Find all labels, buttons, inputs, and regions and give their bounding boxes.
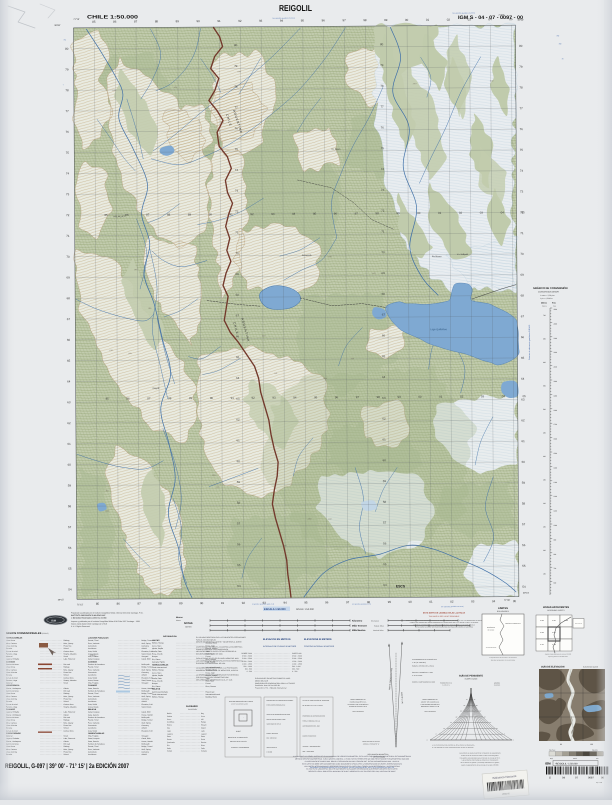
svg-text:A. & I. Rights Reserved.: A. & I. Rights Reserved. <box>71 625 91 628</box>
svg-text:74: 74 <box>520 169 524 173</box>
svg-text:Sendero de herradura: Sendero de herradura <box>88 663 105 666</box>
svg-text:00: 00 <box>417 211 421 215</box>
svg-text:ESTA CARTA DIRIGIRLAS A:: ESTA CARTA DIRIGIRLAS A: <box>267 705 286 707</box>
svg-text:Swamp, Meadow: Swamp, Meadow <box>64 652 78 655</box>
svg-text:59: 59 <box>68 483 72 487</box>
svg-text:02: 02 <box>447 18 451 22</box>
svg-text:IGM: IGM <box>545 762 551 766</box>
svg-text:1:50.000: 1:50.000 <box>267 752 273 754</box>
svg-text:Bosque: Bosque <box>152 682 158 685</box>
svg-text:57: 57 <box>522 522 526 526</box>
svg-text:67: 67 <box>67 317 71 321</box>
svg-text:Building, Ruins: Building, Ruins <box>206 696 217 699</box>
svg-text:500 - 1.000: 500 - 1.000 <box>292 665 301 668</box>
svg-text:Cerco, Muro: Cerco, Muro <box>152 671 161 674</box>
svg-text:03: 03 <box>471 599 475 603</box>
svg-text:67: 67 <box>382 313 386 317</box>
svg-text:56: 56 <box>383 541 387 545</box>
svg-text:SANTIAGO DE CHILE: SANTIAGO DE CHILE <box>267 724 281 726</box>
svg-text:88: 88 <box>155 19 159 23</box>
svg-text:Lake, Reservoir: Lake, Reservoir <box>64 711 76 714</box>
svg-text:FERROCARRILES: FERROCARRILES <box>152 663 169 666</box>
svg-text:Viña, Frutales: Viña, Frutales <box>88 682 99 685</box>
svg-text:87: 87 <box>138 601 142 605</box>
svg-text:56: 56 <box>522 543 526 547</box>
svg-text:CAMINOS: CAMINOS <box>88 684 98 687</box>
svg-text:Cota, Señal: Cota, Señal <box>88 676 97 679</box>
svg-text:80: 80 <box>234 43 238 47</box>
svg-text:Aquellas hojas adyacentes de l: Aquellas hojas adyacentes de la serie 1:… <box>545 654 572 656</box>
svg-text:68: 68 <box>382 292 386 296</box>
svg-text:Volcán: Volcán <box>167 750 172 753</box>
svg-text:61: 61 <box>382 437 386 441</box>
svg-text:Airfield: Airfield <box>142 700 147 703</box>
svg-text:SCALE 1:50.000: SCALE 1:50.000 <box>296 608 314 611</box>
svg-text:Milla Nautica: Milla Nautica <box>352 629 366 632</box>
svg-text:PENDIENTE EN %: PENDIENTE EN % <box>440 683 453 685</box>
svg-text:Swamp, Meadow: Swamp, Meadow <box>64 679 78 682</box>
svg-text:88: 88 <box>167 213 171 217</box>
svg-text:Mine, Quarry: Mine, Quarry <box>64 748 74 751</box>
svg-text:57: 57 <box>237 522 241 526</box>
svg-text:71: 71 <box>66 234 70 238</box>
svg-text:58: 58 <box>68 504 72 508</box>
svg-text:2.000 - 2.500: 2.000 - 2.500 <box>292 657 302 660</box>
svg-text:Cota, Señal: Cota, Señal <box>88 729 97 732</box>
svg-text:63: 63 <box>521 398 525 402</box>
svg-text:DISTRIBUCION: DISTRIBUCION <box>163 635 177 638</box>
svg-text:Sand, Dunes: Sand, Dunes <box>142 679 152 682</box>
svg-text:BOUNDARIES: BOUNDARIES <box>497 610 510 613</box>
svg-text:Quebrada: Quebrada <box>167 741 175 744</box>
svg-text:68: 68 <box>521 294 525 298</box>
svg-text:Mine, Quarry: Mine, Quarry <box>64 695 74 698</box>
svg-text:Cementerio: Cementerio <box>88 724 97 727</box>
svg-text:Point: Point <box>201 738 205 741</box>
svg-text:GUÍA DE PENDIENTE: GUÍA DE PENDIENTE <box>459 674 484 678</box>
svg-text:78: 78 <box>65 88 69 92</box>
svg-text:Viña, Frutales: Viña, Frutales <box>88 655 99 658</box>
svg-text:Impreso y publicado por el Ins: Impreso y publicado por el Instituto Geo… <box>71 620 140 623</box>
svg-text:79: 79 <box>234 64 238 68</box>
svg-text:Railway: Railway <box>64 745 70 748</box>
svg-text:98: 98 <box>377 395 381 399</box>
svg-text:78: 78 <box>234 85 238 89</box>
svg-text:69: 69 <box>381 271 385 275</box>
svg-text:Mine, Quarry: Mine, Quarry <box>64 721 74 724</box>
svg-text:95: 95 <box>301 18 305 22</box>
svg-text:Cove: Cove <box>201 715 205 718</box>
svg-text:59: 59 <box>237 480 241 484</box>
svg-text:04: 04 <box>492 599 496 603</box>
svg-text:Viña, Frutales: Viña, Frutales <box>88 735 99 738</box>
svg-text:02: 02 <box>450 600 454 604</box>
svg-text:Canal, Acequia: Canal, Acequia <box>88 737 99 740</box>
svg-text:Arena, Dunas: Arena, Dunas <box>88 705 98 708</box>
svg-text:78: 78 <box>519 86 523 90</box>
svg-text:57: 57 <box>383 521 387 525</box>
svg-text:Milla Terrestre: Milla Terrestre <box>352 625 368 628</box>
svg-text:56: 56 <box>237 542 241 546</box>
svg-text:93: 93 <box>259 19 263 23</box>
svg-text:71: 71 <box>520 231 524 235</box>
svg-text:Límite internacional: Límite internacional <box>152 693 167 696</box>
svg-text:1500: 1500 <box>134 268 138 271</box>
svg-text:ADJOINING SHEETS: ADJOINING SHEETS <box>547 609 565 612</box>
svg-text:89: 89 <box>189 396 193 400</box>
svg-text:Dirt road: Dirt road <box>64 663 71 666</box>
svg-text:Rinconada: Rinconada <box>302 254 312 257</box>
svg-text:03: 03 <box>468 17 472 21</box>
svg-text:97: 97 <box>342 18 346 22</box>
svg-text:76: 76 <box>66 130 70 134</box>
svg-text:63: 63 <box>382 396 386 400</box>
svg-text:Aeródromo: Aeródromo <box>88 700 96 703</box>
svg-text:66: 66 <box>67 338 71 342</box>
svg-text:Cemetery: Cemetery <box>142 671 149 674</box>
svg-text:72: 72 <box>235 210 239 214</box>
svg-text:1669: 1669 <box>112 89 116 92</box>
svg-text:Power line: Power line <box>64 697 72 700</box>
svg-text:Sand, Dunes: Sand, Dunes <box>142 652 152 655</box>
svg-text:NOTAS: NOTAS <box>184 622 193 625</box>
svg-text:a. LA DISTANCIA ENTRE CURVAS: a. LA DISTANCIA ENTRE CURVAS DE NIVEL IN… <box>432 745 475 747</box>
svg-text:Canal, Ditch: Canal, Ditch <box>142 737 151 740</box>
svg-text:Sendero de herradura: Sendero de herradura <box>88 690 105 693</box>
svg-text:Scrub: Scrub <box>64 682 68 685</box>
svg-text:Sand, Dunes: Sand, Dunes <box>142 705 152 708</box>
svg-text:Metros: Metros <box>541 302 547 305</box>
svg-text:DEGREES: DEGREES <box>494 685 500 687</box>
svg-text:Casa, Caserío: Casa, Caserío <box>88 687 99 690</box>
svg-text:IGM - SANTIAGO: IGM - SANTIAGO <box>303 751 315 753</box>
svg-text:Kilometro: Kilometro <box>352 620 363 623</box>
svg-text:68: 68 <box>236 293 240 297</box>
svg-text:00: 00 <box>418 395 422 399</box>
svg-text:1.500 - 2.000: 1.500 - 2.000 <box>292 660 302 663</box>
svg-text:99: 99 <box>397 395 401 399</box>
svg-text:Well, Spring: Well, Spring <box>142 642 151 645</box>
svg-text:65: 65 <box>67 359 71 363</box>
svg-text:Power line: Power line <box>64 671 72 674</box>
svg-text:TOTAL O PARCIAL SIN LA: TOTAL O PARCIAL SIN LA <box>303 720 320 722</box>
svg-text:ESTE MAPA ES LEGIBLE BAJO LUZ: ESTE MAPA ES LEGIBLE BAJO LUZ ROJA <box>423 612 466 615</box>
svg-text:67: 67 <box>521 314 525 318</box>
svg-text:Power line: Power line <box>64 750 72 753</box>
svg-text:04: 04 <box>488 17 492 21</box>
svg-text:56: 56 <box>68 546 72 550</box>
svg-text:Pass: Pass <box>201 735 205 738</box>
svg-text:River, Stream: River, Stream <box>206 685 217 688</box>
svg-text:94: 94 <box>292 212 296 216</box>
svg-text:98: 98 <box>367 600 371 604</box>
svg-text:1393: 1393 <box>105 510 109 513</box>
svg-text:01: 01 <box>439 395 443 399</box>
svg-text:Bridle path: Bridle path <box>142 716 150 719</box>
svg-text:Cascada, Rápido: Cascada, Rápido <box>152 661 165 664</box>
svg-text:© Derechos Reservados JJ010-0: © Derechos Reservados JJ010-0 a 01-068 <box>71 617 106 620</box>
svg-text:62: 62 <box>67 421 71 425</box>
svg-text:73: 73 <box>520 190 524 194</box>
svg-text:Lake, Reservoir: Lake, Reservoir <box>64 658 76 661</box>
svg-text:Mine, Quarry: Mine, Quarry <box>64 668 74 671</box>
svg-text:Railway: Railway <box>64 719 70 722</box>
svg-text:Dirt road: Dirt road <box>64 690 71 693</box>
svg-text:Range: Range <box>201 721 206 724</box>
svg-text:RELIEVE: RELIEVE <box>88 708 97 711</box>
svg-text:Kilometers: Kilometers <box>371 620 379 623</box>
svg-text:Elevation, B.M.: Elevation, B.M. <box>142 729 154 732</box>
svg-text:74: 74 <box>66 171 70 175</box>
svg-text:66: 66 <box>521 335 525 339</box>
svg-text:Well, Spring: Well, Spring <box>142 695 151 698</box>
svg-text:39°15': 39°15' <box>58 598 65 601</box>
svg-text:INSTITUTO GEOGRÁFICO MILITAR 2: INSTITUTO GEOGRÁFICO MILITAR 2007 <box>71 614 105 617</box>
svg-text:Río, Estero: Río, Estero <box>152 685 161 688</box>
svg-text:Aeródromo: Aeródromo <box>88 753 96 756</box>
svg-text:Vn. Sollipulli: Vn. Sollipulli <box>457 253 468 256</box>
svg-text:99: 99 <box>384 18 388 22</box>
svg-text:SHEET LOCATION GUIDE: SHEET LOCATION GUIDE <box>231 703 248 705</box>
svg-text:FERROCARRILES: FERROCARRILES <box>88 732 105 735</box>
svg-text:INTERVALO DE CURVAS 50 METROS: INTERVALO DE CURVAS 50 METROS <box>263 645 297 648</box>
svg-text:88: 88 <box>168 396 172 400</box>
svg-text:60: 60 <box>383 458 387 462</box>
svg-text:61: 61 <box>67 442 71 446</box>
svg-text:1170: 1170 <box>216 486 220 489</box>
svg-text:2231: 2231 <box>212 474 216 477</box>
svg-text:Cordillera: Cordillera <box>167 721 174 724</box>
svg-text:GRÁFICO DE CONVERSIÓN: GRÁFICO DE CONVERSIÓN <box>533 286 568 290</box>
svg-text:85: 85 <box>106 397 110 401</box>
svg-text:Scrub: Scrub <box>64 655 68 658</box>
svg-text:FONO: 460 68 00: FONO: 460 68 00 <box>267 733 279 735</box>
svg-text:73: 73 <box>235 189 239 193</box>
svg-text:Canal, Ditch: Canal, Ditch <box>142 658 151 661</box>
svg-text:Lake: Lake <box>201 729 205 732</box>
svg-text:Cementerio: Cementerio <box>88 671 97 674</box>
svg-text:0 - 200: 0 - 200 <box>292 670 297 673</box>
svg-text:62: 62 <box>521 418 525 422</box>
svg-text:Vineyard: Vineyard <box>142 735 149 738</box>
svg-text:55: 55 <box>383 562 387 566</box>
svg-text:LUGARES POBLADOS: LUGARES POBLADOS <box>88 637 109 640</box>
svg-text:Roca, Arrecife: Roca, Arrecife <box>152 680 163 683</box>
svg-text:00: 00 <box>409 600 413 604</box>
svg-text:91: 91 <box>217 19 221 23</box>
svg-text:1942: 1942 <box>490 79 494 82</box>
svg-text:73: 73 <box>66 192 70 196</box>
svg-text:Dirt road: Dirt road <box>64 716 71 719</box>
svg-text:71: 71 <box>235 230 239 234</box>
svg-text:School: School <box>64 753 70 756</box>
svg-text:Huella, Pista: Huella, Pista <box>152 650 162 653</box>
svg-text:71°15': 71°15' <box>77 603 84 606</box>
svg-text:Río: Río <box>167 744 170 747</box>
svg-text:67: 67 <box>236 314 240 318</box>
svg-text:65: 65 <box>382 354 386 358</box>
svg-text:74: 74 <box>381 167 385 171</box>
svg-text:Mine, Quarry: Mine, Quarry <box>64 642 74 645</box>
svg-text:Puente, Túnel: Puente, Túnel <box>88 692 99 695</box>
svg-text:School: School <box>64 727 70 730</box>
svg-text:G-086: G-086 <box>540 620 544 622</box>
svg-text:87: 87 <box>147 396 151 400</box>
svg-text:1184: 1184 <box>128 352 132 355</box>
svg-text:880: 880 <box>148 307 151 310</box>
svg-text:59: 59 <box>522 481 526 485</box>
svg-text:Bridle path: Bridle path <box>142 743 150 746</box>
svg-text:926: 926 <box>351 357 354 360</box>
svg-text:ESCS: ESCS <box>396 584 406 588</box>
svg-text:Rio Blanco: Rio Blanco <box>432 255 443 258</box>
svg-text:2.500 - 3.000: 2.500 - 3.000 <box>242 655 252 658</box>
svg-text:Casa, Caserío: Casa, Caserío <box>88 740 99 743</box>
svg-text:IGM: IGM <box>51 619 56 622</box>
svg-text:93: 93 <box>272 396 276 400</box>
svg-text:55: 55 <box>237 563 241 567</box>
svg-text:71°00': 71°00' <box>498 14 505 17</box>
svg-text:Pozo, Vertiente: Pozo, Vertiente <box>88 668 100 671</box>
svg-text:1656: 1656 <box>174 86 178 89</box>
svg-text:Bosque: Bosque <box>152 655 158 658</box>
svg-text:Swamp, Meadow: Swamp, Meadow <box>64 705 78 708</box>
svg-text:62: 62 <box>236 418 240 422</box>
svg-text:Canal, Ditch: Canal, Ditch <box>142 711 151 714</box>
svg-text:05: 05 <box>509 17 513 21</box>
svg-text:Lago Quillelhue: Lago Quillelhue <box>430 328 447 331</box>
svg-text:96: 96 <box>560 743 562 746</box>
svg-text:70: 70 <box>520 252 524 256</box>
svg-text:Pozo, Vertiente: Pozo, Vertiente <box>88 695 100 698</box>
svg-text:90: 90 <box>209 212 213 216</box>
svg-text:Edificio, Ruinas: Edificio, Ruinas <box>152 696 164 699</box>
svg-text:39°00': 39°00' <box>54 24 61 27</box>
svg-text:Airfield: Airfield <box>142 674 147 677</box>
svg-text:Volcano: Volcano <box>201 750 207 753</box>
svg-text:96: 96 <box>325 600 329 604</box>
svg-text:02: 02 <box>459 211 463 215</box>
svg-text:58: 58 <box>522 502 526 506</box>
svg-text:Puente, Túnel: Puente, Túnel <box>88 719 99 722</box>
svg-text:95: 95 <box>304 600 308 604</box>
svg-text:71: 71 <box>381 229 385 233</box>
svg-text:93: 93 <box>271 212 275 216</box>
svg-text:992: 992 <box>106 489 109 492</box>
svg-text:Aeródromo: Aeródromo <box>88 647 96 650</box>
svg-text:School: School <box>64 700 70 703</box>
svg-text:99: 99 <box>396 211 400 215</box>
svg-text:95: 95 <box>313 212 317 216</box>
svg-text:95: 95 <box>314 395 318 399</box>
svg-text:87: 87 <box>146 213 150 217</box>
svg-text:G-104: G-104 <box>540 644 544 646</box>
svg-text:G-097: G-097 <box>552 620 556 622</box>
svg-text:02: 02 <box>460 394 464 398</box>
svg-text:39°15': 39°15' <box>523 592 530 595</box>
svg-text:CONTOUR INTERVAL 50 METERS: CONTOUR INTERVAL 50 METERS <box>304 645 335 648</box>
svg-text:Contour lines: Contour lines <box>64 650 74 653</box>
svg-text:Caleta: Caleta <box>167 715 172 718</box>
svg-text:1816: 1816 <box>323 377 327 380</box>
svg-text:76: 76 <box>520 127 524 131</box>
svg-text:DE CHILE: DE CHILE <box>488 630 494 632</box>
svg-text:57: 57 <box>68 525 72 529</box>
svg-text:Bridle path: Bridle path <box>142 663 150 666</box>
svg-text:Adjoining sheets of 1:50.000 s: Adjoining sheets of 1:50.000 series <box>548 656 568 658</box>
svg-text:Stream: Stream <box>201 724 207 727</box>
svg-text:63: 63 <box>236 397 240 401</box>
svg-text:Bridle path: Bridle path <box>142 690 150 693</box>
svg-text:72: 72 <box>520 210 524 214</box>
svg-text:1443: 1443 <box>372 272 376 275</box>
svg-text:Glacier: Glacier <box>64 687 70 690</box>
svg-text:LIMITES: LIMITES <box>498 607 508 610</box>
svg-text:Well, Spring: Well, Spring <box>142 668 151 671</box>
svg-text:Cemetery: Cemetery <box>142 644 149 647</box>
svg-text:Estero: Estero <box>167 724 172 727</box>
svg-text:90: 90 <box>197 19 201 23</box>
svg-text:REIGOLIL: REIGOLIL <box>279 3 312 13</box>
svg-text:61: 61 <box>521 439 525 443</box>
svg-text:GLOSSARY: GLOSSARY <box>188 708 198 711</box>
svg-text:91: 91 <box>231 396 235 400</box>
svg-text:64: 64 <box>521 377 525 381</box>
svg-text:86: 86 <box>113 20 117 24</box>
svg-text:Contour lines: Contour lines <box>64 676 74 679</box>
svg-text:-REIGOLIL- 1:50.000: -REIGOLIL- 1:50.000 <box>555 763 578 766</box>
svg-text:Sendero de herradura: Sendero de herradura <box>88 716 105 719</box>
svg-text:89: 89 <box>176 19 180 23</box>
svg-text:69: 69 <box>520 273 524 277</box>
svg-text:1257: 1257 <box>109 349 113 352</box>
svg-text:1.000 - 1.500: 1.000 - 1.500 <box>242 662 252 665</box>
svg-text:Aeródromo: Aeródromo <box>88 674 96 677</box>
svg-text:Nautical Miles: Nautical Miles <box>373 629 384 632</box>
svg-text:Scrub: Scrub <box>64 735 68 738</box>
svg-text:GRADOS: GRADOS <box>494 683 500 685</box>
svg-text:Arena, Dunas: Arena, Dunas <box>88 679 98 682</box>
svg-text:66: 66 <box>236 334 240 338</box>
svg-text:92: 92 <box>250 212 254 216</box>
svg-text:Bahía: Bahía <box>167 712 171 715</box>
svg-text:Co. Negro: Co. Negro <box>331 148 341 151</box>
svg-text:85: 85 <box>104 213 108 217</box>
svg-text:Bay: Bay <box>201 712 204 715</box>
svg-text:Railway: Railway <box>64 639 70 642</box>
svg-text:74: 74 <box>235 168 239 172</box>
svg-text:72: 72 <box>66 213 70 217</box>
svg-text:Power line: Power line <box>64 724 72 727</box>
svg-text:House, Hamlet: House, Hamlet <box>142 740 154 743</box>
svg-text:71°00': 71°00' <box>504 599 511 602</box>
svg-text:Cementerio: Cementerio <box>88 697 97 700</box>
svg-text:Río, Estero: Río, Estero <box>152 658 161 661</box>
svg-text:SOBRE 3.000: SOBRE 3.000 <box>241 652 252 655</box>
svg-text:0097: 0097 <box>588 777 594 780</box>
svg-text:International bound.: International bound. <box>206 693 221 696</box>
svg-text:64: 64 <box>382 375 386 379</box>
svg-text:200 - 500: 200 - 500 <box>245 668 252 671</box>
svg-text:97: 97 <box>355 211 359 215</box>
svg-text:61: 61 <box>236 438 240 442</box>
svg-text:60: 60 <box>237 459 241 463</box>
svg-text:Well, Spring: Well, Spring <box>142 721 151 724</box>
svg-text:79: 79 <box>519 65 523 69</box>
svg-text:Cemetery: Cemetery <box>142 697 149 700</box>
svg-text:69: 69 <box>66 275 70 279</box>
svg-text:Boundary representation is not: Boundary representation is not authorita… <box>491 659 515 661</box>
